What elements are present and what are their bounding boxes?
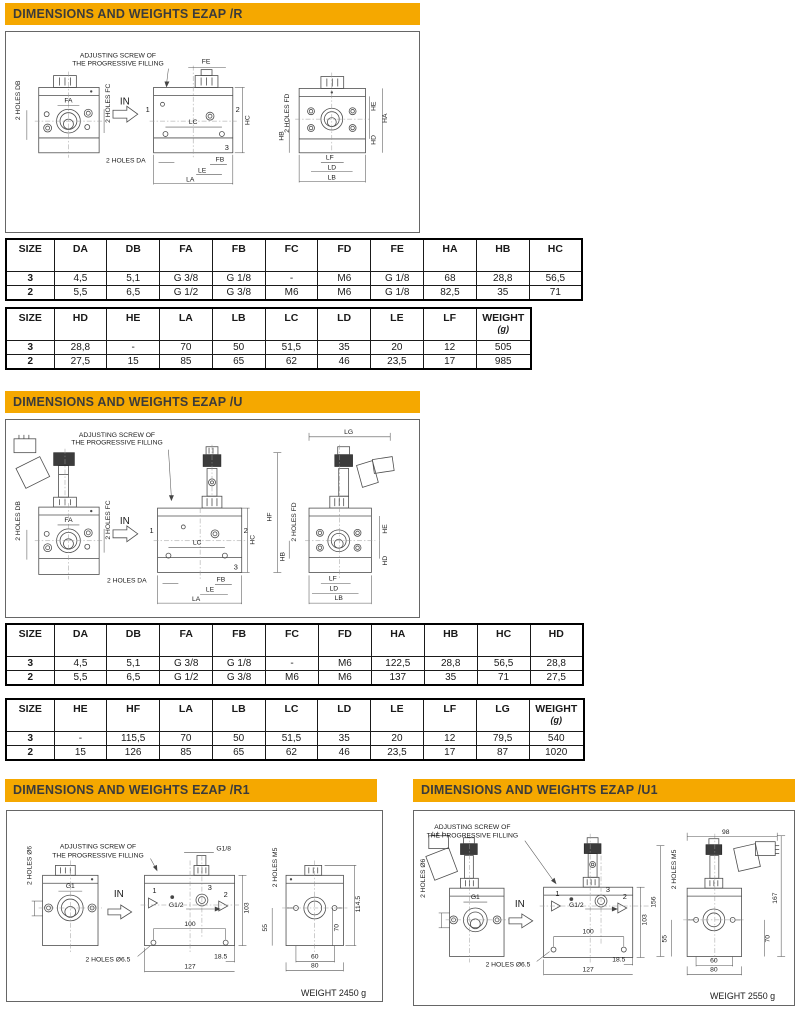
- value-cell: G 3/8: [160, 272, 213, 286]
- column-header: LA: [160, 308, 213, 341]
- value-cell: M6: [318, 657, 371, 671]
- value-cell: 71: [477, 671, 530, 686]
- dim-label: 2 HOLES FC: [105, 500, 112, 539]
- dim-label: 2 HOLES DB: [15, 501, 22, 541]
- value-cell: -: [107, 341, 160, 355]
- size-cell: 2: [6, 671, 54, 686]
- dim-label: HC: [245, 115, 252, 125]
- weight-label: WEIGHT 2450 g: [301, 988, 366, 998]
- dim-label: 2 HOLES DA: [106, 158, 146, 165]
- value-cell: 46: [318, 355, 371, 370]
- value-cell: 65: [212, 355, 265, 370]
- value-cell: 46: [318, 746, 371, 761]
- dim-label: IN: [515, 899, 525, 910]
- column-header: LC: [265, 699, 318, 732]
- column-header: FC: [265, 239, 318, 272]
- value-cell: 27,5: [54, 355, 107, 370]
- dim-label: LE: [206, 586, 215, 593]
- dim-label: 3: [234, 562, 238, 571]
- value-cell: 27,5: [530, 671, 583, 686]
- column-header: FE: [371, 239, 424, 272]
- value-cell: 85: [160, 746, 213, 761]
- value-cell: 5,5: [54, 671, 107, 686]
- value-cell: 20: [371, 341, 424, 355]
- dim-label: HE: [370, 101, 377, 111]
- dim-label: 70: [764, 935, 771, 943]
- value-cell: 23,5: [371, 355, 424, 370]
- column-header: LE: [371, 699, 424, 732]
- value-cell: 505: [476, 341, 531, 355]
- table-row: 25,56,5G 1/2G 3/8M6M6G 1/882,53571: [6, 286, 582, 301]
- value-cell: 5,1: [107, 657, 160, 671]
- table-row: 34,55,1G 3/8G 1/8-M6G 1/86828,856,5: [6, 272, 582, 286]
- table-row: 3-115,5705051,535201279,5540: [6, 732, 584, 746]
- dim-label: 1: [150, 526, 154, 535]
- dim-label: 2 HOLES DB: [15, 80, 22, 120]
- value-cell: 35: [318, 732, 371, 746]
- column-header: HC: [477, 624, 530, 657]
- dim-label: FE: [202, 59, 211, 66]
- value-cell: M6: [318, 286, 371, 301]
- value-cell: 87: [476, 746, 529, 761]
- value-cell: G 3/8: [213, 671, 266, 686]
- value-cell: G 1/8: [371, 272, 424, 286]
- dim-label: 70: [333, 924, 340, 932]
- column-header: HA: [371, 624, 424, 657]
- column-header: LC: [265, 308, 318, 341]
- value-cell: 35: [318, 341, 371, 355]
- technical-drawing-ezap-r: ADJUSTING SCREW OFTHE PROGRESSIVE FILLIN…: [6, 32, 419, 232]
- dim-label: IN: [120, 516, 130, 527]
- value-cell: 35: [424, 671, 477, 686]
- datasheet-page: DIMENSIONS AND WEIGHTS EZAP /R: [0, 0, 800, 1014]
- value-cell: 71: [529, 286, 582, 301]
- value-cell: 985: [476, 355, 531, 370]
- column-header: DA: [54, 624, 107, 657]
- dim-label: 18.5: [612, 956, 625, 963]
- dim-label: 2 HOLES Ø6: [420, 858, 427, 897]
- column-header: WEIGHT(g): [476, 308, 531, 341]
- dim-label: 2 HOLES M5: [671, 849, 678, 889]
- dim-label: G1: [66, 883, 75, 890]
- column-header: FA: [160, 624, 213, 657]
- value-cell: 85: [160, 355, 213, 370]
- value-cell: 15: [54, 746, 107, 761]
- value-cell: G 1/8: [213, 657, 266, 671]
- dim-label: 3: [606, 885, 610, 894]
- value-cell: 70: [160, 341, 213, 355]
- dim-label: 80: [311, 962, 319, 969]
- dim-label: 2 HOLES DA: [107, 577, 147, 584]
- value-cell: 51,5: [265, 341, 318, 355]
- header-row: SIZEDADBFAFBFCFDFEHAHBHC: [6, 239, 582, 272]
- dim-label: FA: [64, 97, 73, 104]
- leader-arrowhead: [153, 865, 157, 871]
- column-header: SIZE: [6, 624, 54, 657]
- note-line: ADJUSTING SCREW OF: [79, 432, 155, 439]
- value-cell: 122,5: [371, 657, 424, 671]
- value-cell: M6: [318, 671, 371, 686]
- dim-label: 156: [650, 896, 657, 907]
- header-row: SIZEHEHFLALBLCLDLELFLGWEIGHT(g): [6, 699, 584, 732]
- column-header: DB: [107, 239, 160, 272]
- size-cell: 2: [6, 286, 54, 301]
- dim-label: 2 HOLES Ø6.5: [85, 956, 130, 963]
- size-cell: 3: [6, 341, 54, 355]
- dim-label: LF: [326, 155, 334, 162]
- dim-label: 2: [224, 890, 228, 899]
- column-header: LD: [318, 699, 371, 732]
- dim-label: HA: [382, 113, 389, 123]
- column-header: HB: [424, 624, 477, 657]
- dim-label: 2: [236, 105, 240, 114]
- in-flow-arrow-icon: [108, 905, 132, 919]
- size-cell: 2: [6, 746, 54, 761]
- value-cell: M6: [266, 671, 319, 686]
- value-cell: 79,5: [476, 732, 529, 746]
- value-cell: 115,5: [107, 732, 160, 746]
- column-header: SIZE: [6, 308, 54, 341]
- value-cell: 12: [423, 341, 476, 355]
- drawing-ezap-r: ADJUSTING SCREW OFTHE PROGRESSIVE FILLIN…: [5, 31, 420, 233]
- size-cell: 2: [6, 355, 54, 370]
- column-header: HF: [107, 699, 160, 732]
- dim-label: 103: [243, 902, 250, 913]
- dim-label: 55: [262, 924, 269, 932]
- note-line: THE PROGRESSIVE FILLING: [72, 61, 163, 68]
- table-row: 25,56,5G 1/2G 3/8M6M6137357127,5: [6, 671, 583, 686]
- dim-label: FB: [217, 576, 226, 583]
- dim-label: 2 HOLES FC: [105, 84, 112, 123]
- column-header: HA: [424, 239, 477, 272]
- value-cell: -: [265, 272, 318, 286]
- technical-drawing-ezap-u: ADJUSTING SCREW OFTHE PROGRESSIVE FILLIN…: [6, 420, 419, 617]
- value-cell: 62: [265, 746, 318, 761]
- centerlines: [39, 856, 348, 953]
- dim-label: G1/8: [216, 846, 231, 853]
- header-row: SIZEDADBFAFBFCFDHAHBHCHD: [6, 624, 583, 657]
- column-header: FB: [212, 239, 265, 272]
- value-cell: 62: [265, 355, 318, 370]
- value-cell: M6: [265, 286, 318, 301]
- drawing-labels: ADJUSTING SCREW OFTHE PROGRESSIVE FILLIN…: [27, 844, 366, 998]
- value-cell: 56,5: [477, 657, 530, 671]
- column-header: LF: [423, 699, 476, 732]
- dim-label: HC: [250, 535, 257, 545]
- value-cell: -: [54, 732, 107, 746]
- value-cell: 70: [160, 732, 213, 746]
- column-header: DB: [107, 624, 160, 657]
- dim-label: LB: [328, 175, 337, 182]
- dim-label: FB: [216, 157, 225, 164]
- dim-label: 3: [225, 143, 229, 152]
- value-cell: G 1/8: [212, 272, 265, 286]
- column-header: HB: [476, 239, 529, 272]
- dim-label: 167: [772, 892, 779, 903]
- column-header: LE: [371, 308, 424, 341]
- dim-label: 2 HOLES M5: [272, 847, 279, 887]
- value-cell: 6,5: [107, 671, 160, 686]
- dim-label: 2: [623, 892, 627, 901]
- dim-label: G1/2: [169, 902, 184, 909]
- leader-arrowhead: [169, 495, 174, 501]
- value-cell: 126: [107, 746, 160, 761]
- section-header-ezap-u1: DIMENSIONS AND WEIGHTS EZAP /U1: [413, 779, 795, 802]
- value-cell: 51,5: [265, 732, 318, 746]
- dim-label: 2 HOLES Ø6: [27, 846, 34, 885]
- column-header: LG: [476, 699, 529, 732]
- dim-label: 100: [583, 929, 594, 936]
- column-header: FD: [318, 239, 371, 272]
- dim-label: 2 HOLES FD: [284, 93, 291, 132]
- weight-label: WEIGHT 2550 g: [710, 991, 775, 1001]
- column-header: LB: [212, 308, 265, 341]
- table-ezap-u-dimensions-2: SIZEHEHFLALBLCLDLELFLGWEIGHT(g)3-115,570…: [5, 698, 585, 761]
- dim-label: 60: [710, 957, 718, 964]
- value-cell: 50: [212, 341, 265, 355]
- column-header: WEIGHT(g): [529, 699, 584, 732]
- dim-label: LC: [189, 119, 198, 126]
- valve-outline-geometry: [43, 856, 344, 946]
- valve-outline-geometry: [14, 435, 394, 575]
- value-cell: M6: [318, 272, 371, 286]
- drawing-ezap-u: ADJUSTING SCREW OFTHE PROGRESSIVE FILLIN…: [5, 419, 420, 618]
- column-header: FD: [318, 624, 371, 657]
- dim-label: 1: [146, 105, 150, 114]
- size-cell: 3: [6, 272, 54, 286]
- value-cell: 28,8: [476, 272, 529, 286]
- dim-label: HD: [382, 556, 389, 566]
- size-cell: 3: [6, 657, 54, 671]
- value-cell: 4,5: [54, 657, 107, 671]
- table-ezap-r-dimensions-1: SIZEDADBFAFBFCFDFEHAHBHC34,55,1G 3/8G 1/…: [5, 238, 583, 301]
- note-line: ADJUSTING SCREW OF: [60, 844, 136, 851]
- in-flow-arrow-icon: [113, 526, 138, 542]
- value-cell: 17: [423, 355, 476, 370]
- dim-label: HD: [370, 135, 377, 145]
- column-header: SIZE: [6, 239, 54, 272]
- valve-outline-geometry: [39, 70, 366, 153]
- section-header-ezap-r1: DIMENSIONS AND WEIGHTS EZAP /R1: [5, 779, 377, 802]
- technical-drawing-ezap-u1: ADJUSTING SCREW OFTHE PROGRESSIVE FILLIN…: [414, 811, 794, 1005]
- value-cell: 12: [423, 732, 476, 746]
- table-row: 34,55,1G 3/8G 1/8-M6122,528,856,528,8: [6, 657, 583, 671]
- column-header: FA: [160, 239, 213, 272]
- value-cell: G 1/2: [160, 286, 213, 301]
- value-cell: 82,5: [424, 286, 477, 301]
- value-cell: 68: [424, 272, 477, 286]
- note-line: THE PROGRESSIVE FILLING: [427, 833, 518, 840]
- value-cell: G 3/8: [160, 657, 213, 671]
- column-header: FB: [213, 624, 266, 657]
- value-cell: 5,1: [107, 272, 160, 286]
- dim-label: FA: [64, 517, 73, 524]
- dim-label: LE: [198, 168, 207, 175]
- table-row: 227,5158565624623,517985: [6, 355, 531, 370]
- dim-label: HF: [266, 513, 273, 522]
- value-cell: 28,8: [530, 657, 583, 671]
- value-cell: 17: [423, 746, 476, 761]
- dim-label: 103: [642, 914, 649, 925]
- dim-label: HE: [382, 524, 389, 534]
- dim-label: HB: [278, 131, 285, 141]
- value-cell: 28,8: [424, 657, 477, 671]
- table-ezap-r-dimensions-2: SIZEHDHELALBLCLDLELFWEIGHT(g)328,8-70505…: [5, 307, 532, 370]
- size-cell: 3: [6, 732, 54, 746]
- table-ezap-u-dimensions-1: SIZEDADBFAFBFCFDHAHBHCHD34,55,1G 3/8G 1/…: [5, 623, 584, 686]
- value-cell: 50: [212, 732, 265, 746]
- table-row: 328,8-705051,5352012505: [6, 341, 531, 355]
- note-line: THE PROGRESSIVE FILLING: [52, 853, 143, 860]
- value-cell: 35: [476, 286, 529, 301]
- column-header: LB: [212, 699, 265, 732]
- value-cell: 1020: [529, 746, 584, 761]
- dim-label: LA: [186, 177, 195, 184]
- column-header: HC: [529, 239, 582, 272]
- dim-label: 2 HOLES FD: [291, 502, 298, 541]
- dim-label: 60: [311, 953, 319, 960]
- column-header: LD: [318, 308, 371, 341]
- header-row: SIZEHDHELALBLCLDLELFWEIGHT(g): [6, 308, 531, 341]
- value-cell: -: [266, 657, 319, 671]
- value-cell: 65: [212, 746, 265, 761]
- note-line: ADJUSTING SCREW OF: [80, 53, 156, 60]
- dim-label: IN: [114, 889, 124, 900]
- dim-label: 3: [208, 883, 212, 892]
- note-line: ADJUSTING SCREW OF: [434, 824, 510, 831]
- column-header: HD: [530, 624, 583, 657]
- dim-label: G1/2: [569, 902, 584, 909]
- value-cell: 137: [371, 671, 424, 686]
- drawing-ezap-u1: ADJUSTING SCREW OFTHE PROGRESSIVE FILLIN…: [413, 810, 795, 1006]
- dim-label: 80: [710, 966, 718, 973]
- column-header: SIZE: [6, 699, 54, 732]
- dim-label: 2: [244, 526, 248, 535]
- value-cell: 56,5: [529, 272, 582, 286]
- column-header: LF: [423, 308, 476, 341]
- dim-label: LD: [328, 165, 337, 172]
- column-header: FC: [266, 624, 319, 657]
- dim-label: 114.5: [355, 896, 362, 913]
- value-cell: 6,5: [107, 286, 160, 301]
- value-cell: G 1/2: [160, 671, 213, 686]
- dim-label: 127: [184, 963, 195, 970]
- value-cell: 15: [107, 355, 160, 370]
- value-cell: G 3/8: [212, 286, 265, 301]
- dim-label: 100: [184, 921, 195, 928]
- dim-label: LD: [329, 585, 338, 592]
- dim-label: 55: [661, 935, 668, 943]
- value-cell: 28,8: [54, 341, 107, 355]
- column-header: HD: [54, 308, 107, 341]
- dim-label: LC: [193, 540, 202, 547]
- dim-label: 18.5: [214, 953, 227, 960]
- column-header: HE: [54, 699, 107, 732]
- dim-label: LF: [329, 575, 337, 582]
- dim-label: 1: [555, 889, 559, 898]
- dim-label: IN: [120, 96, 130, 107]
- drawing-ezap-r1: ADJUSTING SCREW OFTHE PROGRESSIVE FILLIN…: [6, 810, 383, 1002]
- section-header-ezap-u: DIMENSIONS AND WEIGHTS EZAP /U: [5, 391, 420, 413]
- note-line: THE PROGRESSIVE FILLING: [71, 440, 162, 447]
- in-flow-arrow-icon: [113, 106, 138, 122]
- dim-label: 2 HOLES Ø6.5: [486, 961, 531, 968]
- dim-label: 1: [152, 886, 156, 895]
- dimension-lines: [439, 833, 785, 976]
- value-cell: 20: [371, 732, 424, 746]
- value-cell: 23,5: [371, 746, 424, 761]
- dim-label: LG: [344, 429, 353, 436]
- value-cell: 4,5: [54, 272, 107, 286]
- dim-label: LA: [192, 596, 201, 603]
- dim-label: HB: [279, 551, 286, 561]
- dim-label: LB: [335, 595, 344, 602]
- section-header-ezap-r: DIMENSIONS AND WEIGHTS EZAP /R: [5, 3, 420, 25]
- column-header: DA: [54, 239, 107, 272]
- technical-drawing-ezap-r1: ADJUSTING SCREW OFTHE PROGRESSIVE FILLIN…: [7, 811, 382, 1001]
- column-header: LA: [160, 699, 213, 732]
- dim-label: G1: [471, 894, 480, 901]
- flow-arrowhead: [612, 907, 618, 912]
- column-header: HE: [107, 308, 160, 341]
- in-flow-arrow-icon: [509, 914, 533, 928]
- dim-label: 127: [583, 966, 594, 973]
- value-cell: G 1/8: [371, 286, 424, 301]
- table-row: 2151268565624623,517871020: [6, 746, 584, 761]
- value-cell: 540: [529, 732, 584, 746]
- dim-label: 98: [722, 829, 730, 836]
- leader-arrowhead: [164, 82, 169, 88]
- value-cell: 5,5: [54, 286, 107, 301]
